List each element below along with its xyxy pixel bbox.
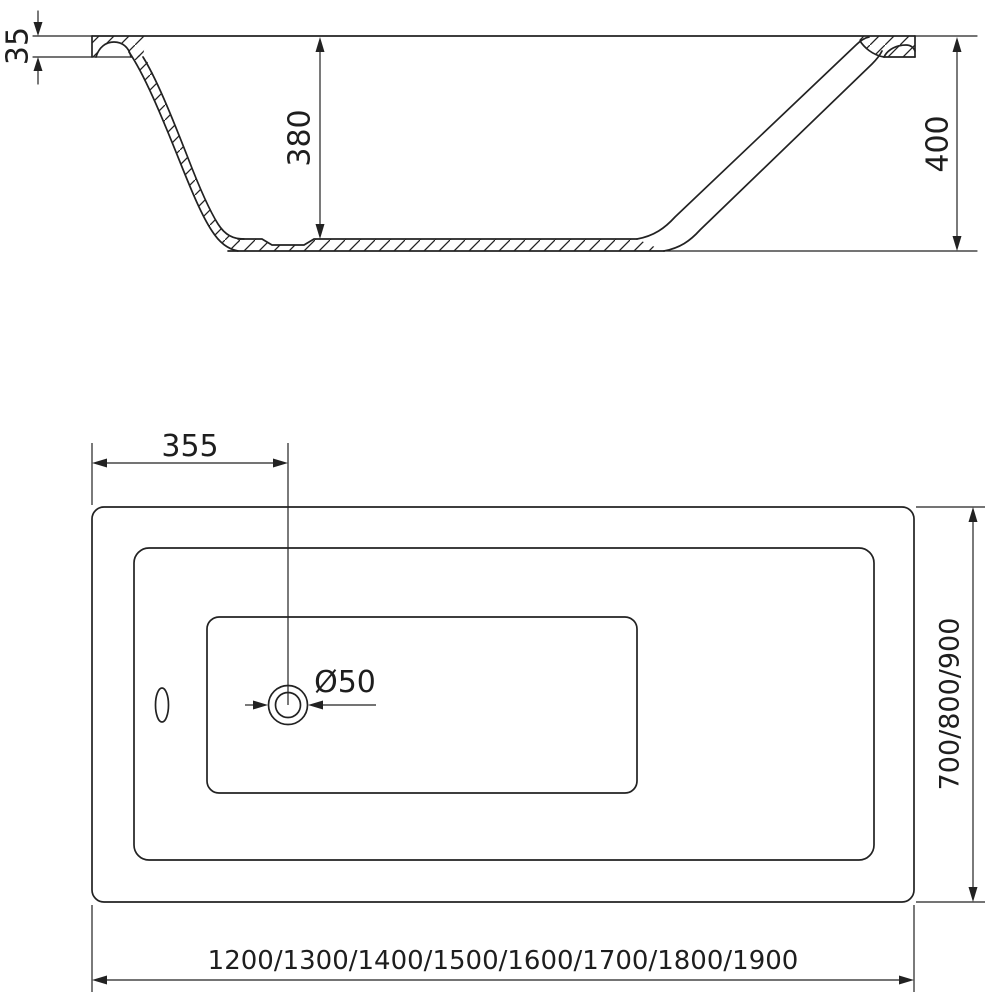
total-height-label: 400 [921,115,956,172]
dim-width-options: 700/800/900 [916,507,985,902]
side-view-cross-section: 35 380 400 [1,11,978,251]
tub-opening-edge [134,548,874,860]
rim-thickness-label: 35 [1,27,36,65]
width-options-label: 700/800/900 [935,618,966,791]
top-view-plan: 355 Ø50 700/800/900 [92,429,985,992]
tub-outer-edge [92,507,914,902]
dim-length-options: 1200/1300/1400/1500/1600/1700/1800/1900 [92,905,914,992]
drain-diameter-label: Ø50 [314,665,376,700]
drain-offset-label: 355 [161,429,218,464]
bathtub-technical-drawing: 35 380 400 [0,0,1000,1000]
tub-floor-edge [207,617,637,793]
drawing-canvas: 35 380 400 [0,0,1000,1000]
dim-drain-diameter: Ø50 [245,665,376,710]
inner-depth-label: 380 [283,109,318,166]
dim-inner-depth: 380 [283,37,325,239]
dim-rim-thickness: 35 [1,11,132,84]
dim-drain-offset: 355 [92,429,288,705]
length-options-label: 1200/1300/1400/1500/1600/1700/1800/1900 [208,946,799,976]
overflow-hole [156,688,169,722]
tub-profile-outline [92,36,915,251]
